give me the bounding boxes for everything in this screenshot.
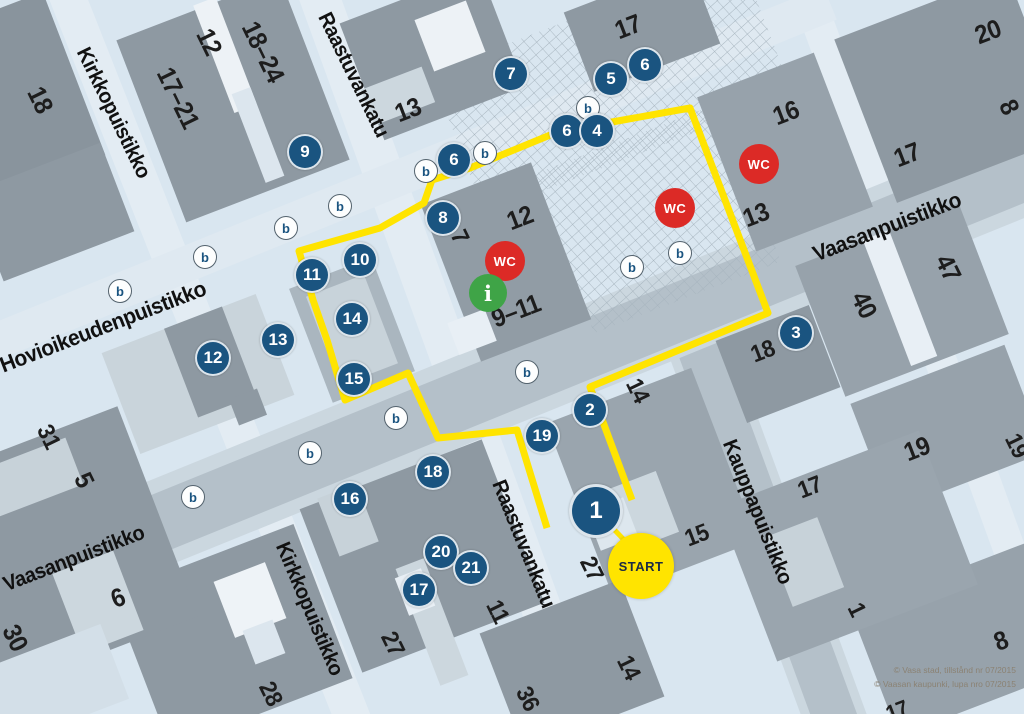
map-background [0, 0, 1024, 714]
copyright-line-1: © Vasa stad, tillstånd nr 07/2015 [894, 663, 1016, 677]
city-map: 181217–2118–2413171620178134740181919127… [0, 0, 1024, 714]
copyright-line-2: © Vaasan kaupunki, lupa nro 07/2015 [874, 677, 1016, 691]
